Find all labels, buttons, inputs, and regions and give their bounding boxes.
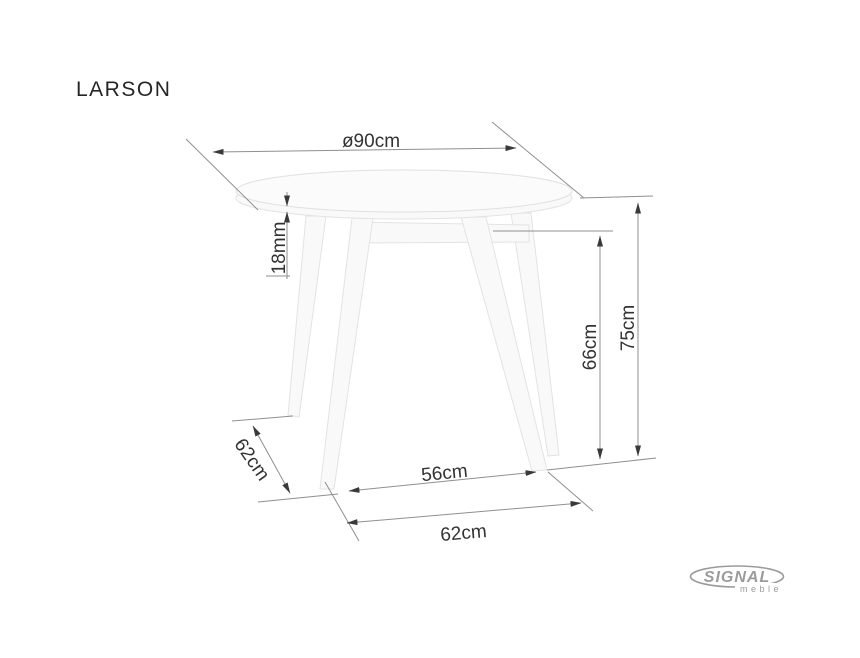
dimension-label-underside-height: 66cm <box>580 324 601 370</box>
extension-line <box>232 416 293 421</box>
dimension-label-base-width: 62cm <box>439 521 487 546</box>
dimension-label-leg-spacing: 56cm <box>420 461 468 487</box>
dimension-label-diameter: ø90cm <box>342 131 400 152</box>
dimension-label-total-height: 75cm <box>618 305 639 351</box>
dimension-drawing: LARSON ø90cm 18mm 66cm 75cm <box>0 0 860 658</box>
table-leg-back-left <box>288 216 326 417</box>
dimension-label-thickness: 18mm <box>269 222 290 275</box>
dimension-front-leg-spacing: 56cm <box>325 461 536 541</box>
extension-line <box>580 196 653 198</box>
logo-tagline-text: meble <box>740 584 782 594</box>
table-drawing <box>236 170 572 489</box>
table-leg-front-left <box>320 218 373 489</box>
product-dimension-sheet: LARSON ø90cm 18mm 66cm 75cm <box>0 0 860 658</box>
floor-extension-line <box>547 458 656 470</box>
brand-logo: SIGNAL meble <box>691 566 784 594</box>
extension-line <box>258 494 338 502</box>
dimension-base-width: 62cm <box>347 472 593 546</box>
table-apron <box>354 222 529 243</box>
product-title: LARSON <box>76 78 171 101</box>
dimension-label-base-depth: 62cm <box>230 435 274 485</box>
dimension-total-height: 75cm <box>547 196 656 470</box>
dimension-line <box>347 503 581 523</box>
extension-line <box>186 139 258 210</box>
table-top-surface <box>236 170 572 212</box>
